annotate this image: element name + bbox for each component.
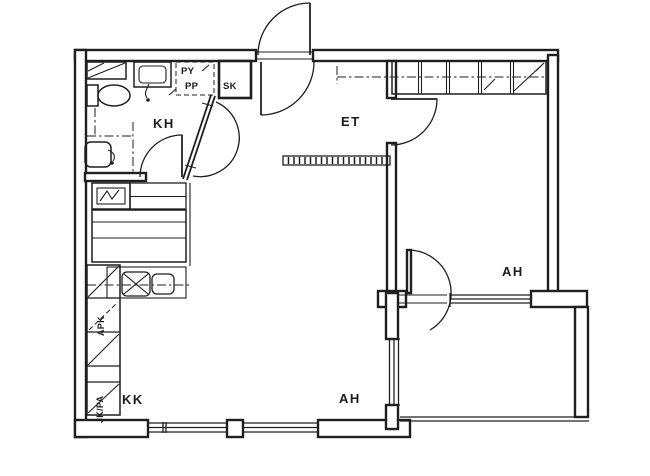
label-dishwasher: APK — [96, 316, 106, 336]
ceiling-dashline — [337, 66, 548, 84]
balcony-door-leaf — [407, 250, 411, 293]
bathroom-diagonal-wall — [183, 95, 239, 180]
washbasin — [134, 62, 171, 102]
room-label-bathroom: KH — [153, 116, 175, 131]
cleaning-closet-box — [219, 61, 251, 98]
bathroom-cabinet — [87, 62, 126, 79]
floor-plan: KH ET AH AH KK SK PY PP APK JK/PA — [0, 0, 650, 476]
balcony-door-arc — [409, 250, 451, 330]
bedroom-window — [398, 293, 531, 307]
room-label-bedroom: AH — [502, 264, 524, 279]
entrance-door — [256, 3, 314, 115]
hall-partition — [283, 156, 390, 165]
room-label-kitchenette: KK — [122, 392, 144, 407]
kitchen-tall-cabinets — [87, 265, 120, 415]
label-cleaning-closet: SK — [223, 81, 237, 92]
stove — [92, 183, 130, 209]
kitchen-sink — [122, 272, 174, 296]
kitchen-counter — [92, 183, 190, 298]
label-laundry-py: PY — [181, 66, 194, 77]
balcony-wall — [575, 307, 588, 417]
label-fridge-freezer: JK/PA — [95, 396, 105, 423]
room-label-hallway: ET — [341, 114, 361, 129]
toilet — [87, 85, 130, 106]
exterior-walls — [75, 50, 558, 437]
bedroom-door — [391, 99, 437, 145]
washbasin-2 — [85, 142, 114, 167]
living-balcony-window — [388, 339, 400, 405]
room-label-living: AH — [339, 391, 361, 406]
kitchen-fixtures — [87, 183, 190, 415]
label-laundry-pp: PP — [185, 81, 198, 92]
balcony-railing — [400, 417, 589, 421]
bathroom-door — [140, 135, 182, 177]
balcony — [400, 250, 589, 421]
